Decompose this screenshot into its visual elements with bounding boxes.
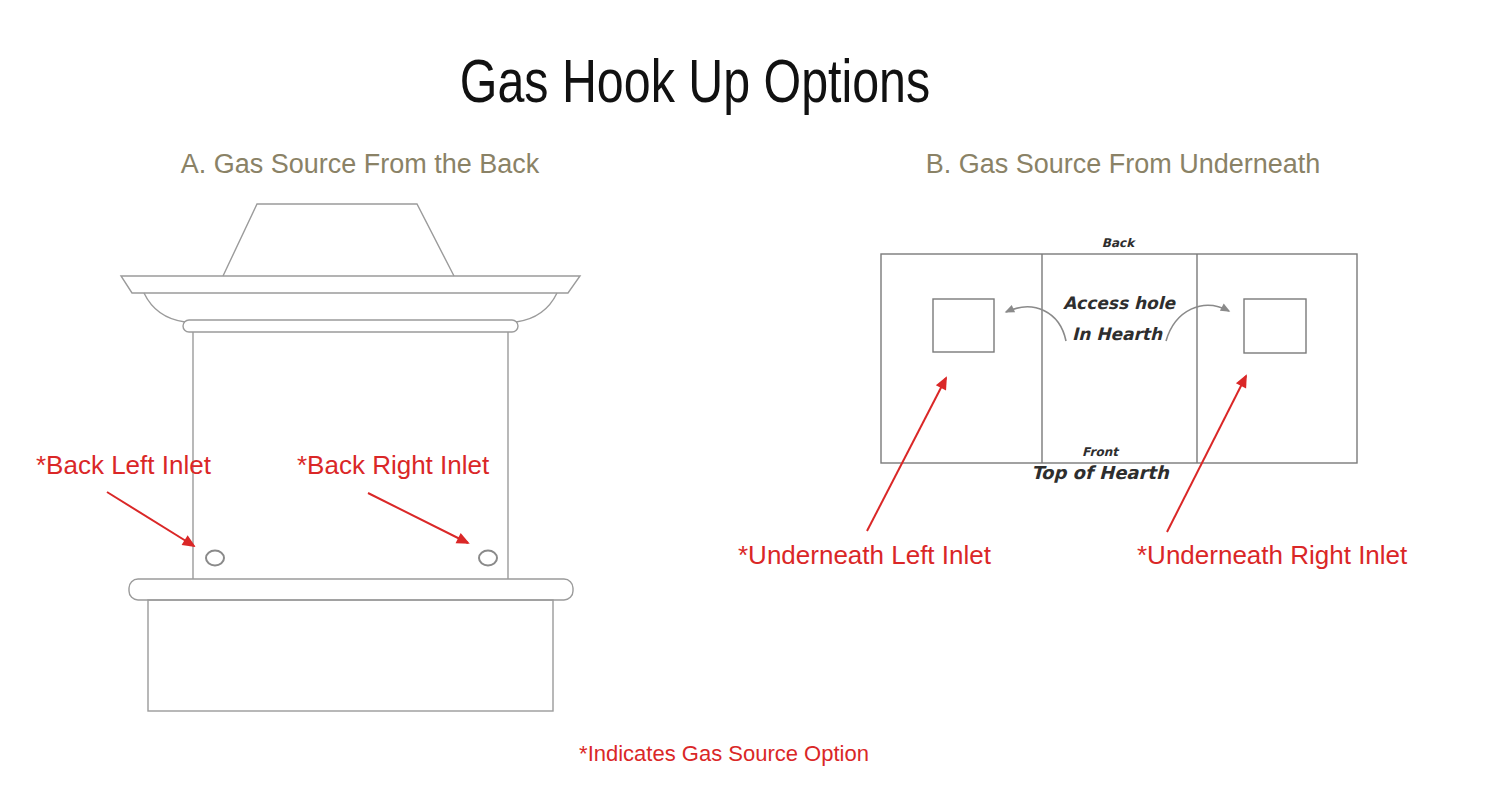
- arrow-back-right-inlet: [368, 493, 468, 543]
- arrow-underneath-right-inlet: [1167, 376, 1246, 532]
- mantel-bead: [183, 320, 518, 332]
- access-hole-label-line2: In Hearth: [1072, 325, 1162, 344]
- access-hole-label-line1: Access hole: [1063, 294, 1175, 313]
- mantel-cove-right: [516, 293, 557, 322]
- top-of-hearth-label: Top of Hearth: [1031, 463, 1169, 483]
- diagram-line-art: [0, 0, 1500, 790]
- gas-source-footnote: *Indicates Gas Source Option: [579, 742, 869, 767]
- arrow-underneath-left-inlet: [867, 378, 946, 531]
- left-access-hole: [933, 299, 994, 352]
- curved-arrow-to-left-hole: [1006, 307, 1066, 341]
- arrow-back-left-inlet: [107, 492, 194, 546]
- hearth-outline: [881, 254, 1357, 463]
- section-b-heading: B. Gas Source From Underneath: [926, 149, 1321, 179]
- right-access-hole: [1244, 299, 1306, 353]
- mantel-band: [121, 276, 580, 293]
- page-title: Gas Hook Up Options: [460, 46, 930, 115]
- hearth-ledge: [129, 579, 573, 600]
- back-right-inlet-label: *Back Right Inlet: [297, 451, 489, 480]
- hearth-top-view: [881, 254, 1357, 463]
- hearth-front-label: Front: [1082, 446, 1118, 459]
- underneath-right-inlet-label: *Underneath Right Inlet: [1137, 541, 1407, 570]
- back-left-inlet-label: *Back Left Inlet: [36, 451, 211, 480]
- section-a-heading: A. Gas Source From the Back: [181, 149, 540, 179]
- chimney-cap: [223, 204, 454, 276]
- back-left-inlet-hole: [206, 551, 224, 566]
- underneath-left-inlet-label: *Underneath Left Inlet: [738, 541, 991, 570]
- back-right-inlet-hole: [479, 551, 497, 566]
- hearth-base: [148, 600, 553, 711]
- mantel-cove-left: [144, 293, 185, 322]
- hearth-back-label: Back: [1102, 237, 1134, 250]
- gas-hookup-options-diagram: Gas Hook Up Options A. Gas Source From t…: [0, 0, 1500, 790]
- red-pointer-arrows: [107, 376, 1246, 546]
